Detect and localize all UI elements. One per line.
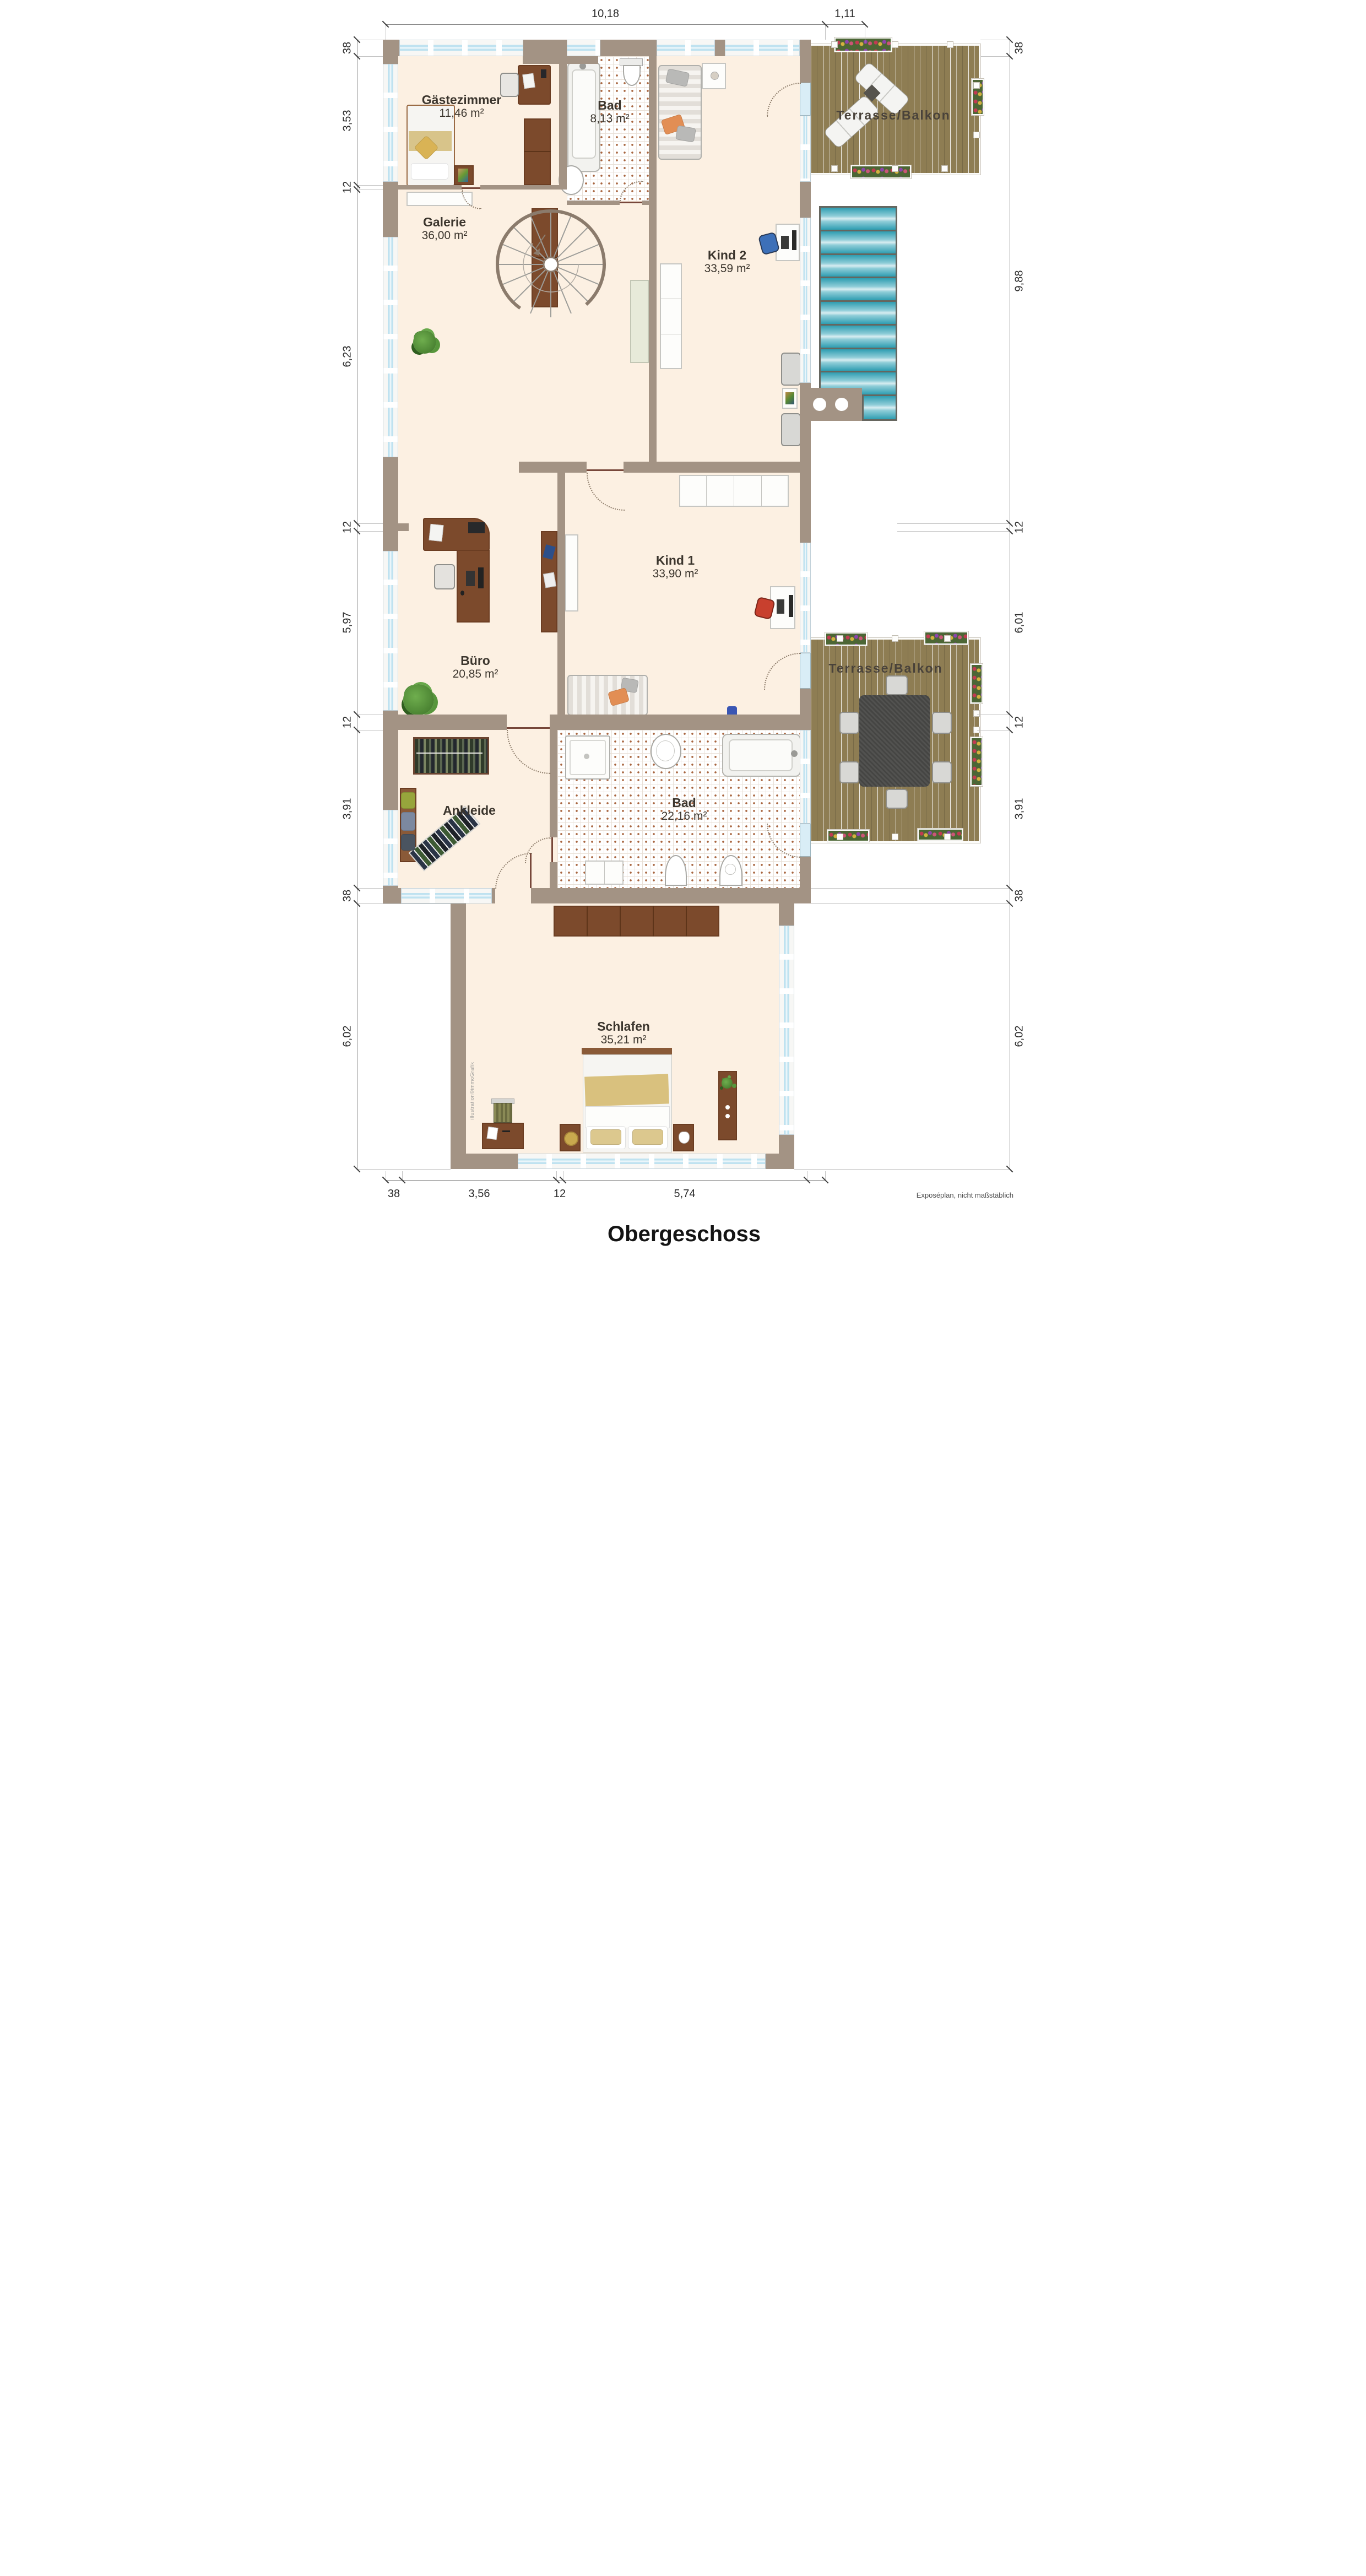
schlafen-jug (679, 1132, 690, 1144)
schlafen-wardrobe-door (686, 906, 687, 937)
schlafen-dresser-plant (722, 1078, 733, 1089)
wall-ankleide-bad-a (550, 730, 557, 837)
dim-ext (897, 523, 1010, 524)
dim-label-left: 12 (341, 181, 354, 193)
bidet-basin (725, 864, 736, 875)
terrace-post (974, 711, 979, 716)
dim-ext (402, 1171, 403, 1180)
wall-gaeste-galerie-b (480, 185, 567, 190)
dim-ext (357, 1169, 451, 1170)
dim-ext (357, 56, 383, 57)
guest-desk-papers (522, 73, 535, 89)
bathtub-ug-faucet (791, 750, 798, 757)
schlafen-wardrobe-row (554, 906, 719, 937)
dim-label-top: 1,11 (834, 8, 855, 20)
kind2-pillow-gray2 (675, 125, 696, 143)
room-label-kind2: Kind 2 (708, 248, 746, 263)
flower-box (825, 632, 867, 646)
bathtub-ug-inner (729, 739, 793, 771)
terrace-post (832, 166, 837, 171)
dim-ext (357, 190, 383, 190)
bad-ug-cabinet-line (604, 861, 605, 885)
dim-ext (556, 1171, 557, 1180)
dim-label-left: 3,53 (341, 110, 354, 132)
ankleide-pillow-blue (401, 812, 415, 831)
schlafen-chair-seat (494, 1103, 512, 1123)
dim-line-right (1010, 40, 1010, 1169)
dim-label-right: 6,02 (1013, 1026, 1025, 1047)
utility-circle (835, 398, 848, 411)
ankleide-wardrobe-rail (416, 753, 483, 754)
schlafen-wardrobe-door (587, 906, 588, 937)
window-left-gaeste (383, 64, 398, 182)
dim-label-left: 6,23 (341, 346, 354, 367)
guest-bed-pillow (411, 163, 448, 180)
buero-plant (403, 684, 434, 715)
skylight-panel (821, 255, 896, 277)
disclaimer: Exposéplan, nicht maßstäblich (917, 1191, 1013, 1199)
dim-ext (807, 1171, 807, 1180)
window-right-bad-ug (800, 730, 811, 824)
schlafen-pillow-tan (590, 1129, 621, 1145)
schlafen-desk-pen (502, 1130, 510, 1132)
dim-ext (825, 24, 826, 40)
dim-line-bottom (386, 1180, 825, 1181)
terrace-post (942, 166, 947, 171)
dim-label-right: 3,91 (1013, 798, 1025, 820)
dim-ext (980, 56, 1010, 57)
room-area-buero: 20,85 m² (453, 668, 498, 681)
flower-box (971, 664, 983, 703)
dim-ext (980, 40, 1010, 40)
wall-bad-og-bottom-a (567, 201, 620, 205)
skylight-panel (864, 396, 896, 419)
guest-desk-phone (541, 69, 546, 78)
flower-box (971, 737, 983, 786)
window-bottom-ankleide (401, 888, 492, 903)
dim-label-bottom: 3,56 (469, 1188, 490, 1200)
terrace-post (837, 834, 843, 840)
skylight-panel (821, 349, 896, 371)
dim-line-left (357, 40, 357, 1169)
window-left-ankleide (383, 810, 398, 886)
window-top-bad (567, 40, 600, 56)
flower-box (851, 165, 911, 178)
terrace-post (832, 42, 837, 47)
buero-chair (434, 564, 455, 589)
buero-mouse (460, 591, 464, 596)
buero-printer (468, 522, 485, 533)
buero-keyboard (466, 571, 475, 586)
kind2-monitor (792, 230, 796, 250)
wall-kind1-kind2-a (519, 462, 587, 473)
flower-box (827, 830, 869, 842)
room-label-bad-ug: Bad (672, 795, 696, 810)
dim-label-bottom: 38 (388, 1188, 400, 1200)
room-area-gaestezimmer: 11,46 m² (439, 107, 484, 120)
schlafen-bed-headboard (582, 1048, 672, 1054)
skylight-panel (821, 326, 896, 348)
page-title: Obergeschoss (608, 1222, 761, 1247)
terrace-post (892, 42, 898, 47)
skylight-panel (821, 302, 896, 324)
kind2-armchair (781, 413, 801, 446)
wall-ankleide-bad-b (550, 862, 557, 888)
dim-label-right: 12 (1013, 521, 1025, 533)
terrace-post (974, 132, 979, 138)
kind2-lamp (711, 72, 719, 80)
buero-desk-side (457, 550, 490, 623)
guest-magazine (458, 169, 468, 182)
dim-label-left: 12 (341, 716, 354, 728)
window-top-kind2-b (725, 40, 800, 56)
terrace-post (837, 636, 843, 641)
schlafen-pillow-tan (632, 1129, 663, 1145)
terrace-post (945, 636, 950, 641)
kind2-wardrobe-line (660, 334, 682, 334)
room-label-buero: Büro (460, 653, 490, 668)
sink-ug-inner (656, 740, 675, 761)
room-area-bad-og: 8,13 m² (590, 112, 629, 126)
wall-mid-a (383, 715, 507, 730)
door-threshold-kind1 (587, 469, 624, 471)
dim-ext (811, 888, 1010, 889)
window-top-kind2-a (657, 40, 715, 56)
dim-label-left: 6,02 (341, 1026, 354, 1047)
kind2-wardrobe-line (660, 299, 682, 299)
room-label-schlafen: Schlafen (597, 1019, 650, 1034)
dim-ext (357, 523, 383, 524)
spiral-staircase (495, 208, 607, 321)
dim-label-right: 12 (1013, 716, 1025, 728)
terrace-door-kind1 (800, 653, 811, 689)
ankleide-pillow-dark (401, 834, 415, 851)
window-left-buero (383, 551, 398, 711)
dim-label-right: 38 (1013, 42, 1025, 54)
schlafen-bed-fold (585, 1106, 670, 1128)
dim-label-left: 38 (341, 890, 354, 902)
dim-ext (977, 730, 1010, 730)
room-area-schlafen: 35,21 m² (601, 1033, 647, 1047)
dim-ext (865, 24, 865, 43)
wall-kind1-kind2-b (624, 462, 800, 473)
dim-ext (357, 531, 383, 532)
window-right-kind2-b (800, 218, 811, 383)
terrace-chair (886, 675, 908, 695)
wall-galerie-kind2 (649, 56, 657, 473)
room-label-terrasse-oben: Terrasse/Balkon (836, 108, 950, 123)
dim-label-right: 6,01 (1013, 612, 1025, 634)
terrace-post (892, 166, 898, 171)
terrace-post (974, 83, 979, 88)
window-right-kind2-a (800, 116, 811, 182)
room-label-terrasse-unten: Terrasse/Balkon (828, 661, 942, 676)
dim-ext (897, 531, 1010, 532)
kind1-cupboard-line (706, 475, 707, 507)
dim-ext (386, 1171, 386, 1180)
floorplan-page: 10,18 1,11 38 3,53 12 6,23 12 5,97 12 3,… (341, 0, 1024, 1288)
room-area-kind2: 33,59 m² (704, 262, 750, 275)
kind1-keyboard (777, 599, 784, 614)
buero-papers (429, 524, 443, 542)
dim-label-left: 38 (341, 42, 354, 54)
skylight-strip (819, 206, 897, 396)
terrace-post (945, 834, 950, 840)
kind2-magazine (785, 392, 794, 404)
dim-ext (357, 715, 383, 715)
ankleide-pillow-green (401, 792, 415, 809)
schlafen-bed-blanket (584, 1074, 669, 1106)
skylight-panel (821, 208, 896, 230)
dim-ext (357, 40, 383, 40)
kind1-monitor (789, 595, 793, 617)
kind2-wardrobe (660, 263, 682, 369)
guest-desk-chair (500, 73, 519, 97)
galerie-cabinet-green (630, 280, 649, 363)
dim-ext (386, 24, 386, 40)
room-label-galerie: Galerie (423, 215, 466, 230)
dim-label-right: 38 (1013, 890, 1025, 902)
dim-label-left: 12 (341, 521, 354, 533)
kind1-cabinet (565, 534, 578, 611)
dim-ext (794, 1169, 1010, 1170)
room-label-kind1: Kind 1 (656, 553, 695, 568)
terrace-post (892, 636, 898, 641)
dim-ext (825, 1171, 826, 1180)
dim-label-left: 5,97 (341, 612, 354, 634)
wall-gaeste-galerie-a (398, 185, 462, 190)
schlafen-wardrobe-door (620, 906, 621, 937)
schlafen-knob (725, 1114, 730, 1118)
schlafen-desk-paper (487, 1127, 498, 1140)
kind1-cupboard-line (734, 475, 734, 507)
terrace-post (947, 42, 953, 47)
wall-buero-kind1 (557, 473, 565, 715)
buero-book (543, 572, 556, 588)
skylight-panel (821, 278, 896, 300)
dim-ext (811, 903, 1010, 904)
shower-drain (584, 754, 589, 759)
galerie-plant (413, 331, 436, 354)
kind2-armchair (781, 353, 801, 386)
door-threshold-bad-ug-door (551, 837, 553, 862)
schlafen-knob (725, 1105, 730, 1110)
dim-label-bottom: 12 (554, 1188, 566, 1200)
dim-ext (357, 903, 451, 904)
terrace-chair (932, 712, 952, 734)
window-annex-bottom (518, 1154, 766, 1169)
room-area-bad-ug: 22,16 m² (662, 810, 707, 823)
terrace-chair (932, 761, 952, 783)
dining-table (859, 695, 930, 787)
door-gap-schlafen (495, 888, 531, 903)
buero-monitor (478, 567, 484, 588)
dim-label-bottom: 5,74 (674, 1188, 696, 1200)
skylight-panel (821, 231, 896, 253)
dim-ext (357, 730, 383, 730)
room-area-kind1: 33,90 m² (653, 567, 698, 581)
door-threshold-gaeste (462, 187, 480, 189)
watermark: illustration©immoGrafik (469, 1062, 475, 1120)
dim-ext (977, 715, 1010, 715)
room-label-ankleide: Ankleide (443, 803, 496, 818)
window-right-kind1 (800, 543, 811, 653)
dim-ext (357, 185, 383, 186)
dim-label-top: 10,18 (592, 8, 619, 20)
skylight-panel-offset (862, 394, 897, 421)
wall-annex-left (451, 903, 466, 1169)
flower-box (834, 37, 892, 52)
dim-line-top (386, 24, 865, 25)
room-label-bad-og: Bad (598, 98, 621, 113)
kind1-cupboard-line (761, 475, 762, 507)
schlafen-wardrobe-door (653, 906, 654, 937)
door-threshold-bad-og (620, 202, 642, 203)
flower-box (918, 829, 963, 841)
kind2-keyboard (781, 236, 789, 249)
terrace-door-bad-ug (800, 824, 811, 857)
dim-ext (357, 888, 383, 889)
terrace-chair (886, 789, 908, 809)
terrace-post (892, 834, 898, 840)
schlafen-gold-disc (564, 1132, 578, 1146)
guest-wardrobe-line (524, 151, 551, 152)
window-left-galerie (383, 237, 398, 457)
wall-stub-left (383, 523, 409, 531)
terrace-chair (839, 761, 859, 783)
ankleide-wardrobe (413, 737, 489, 775)
wall-mid-b (550, 715, 811, 730)
window-annex-right (779, 926, 794, 1135)
window-top-gaeste (399, 40, 523, 56)
dim-ext (563, 1171, 563, 1180)
room-area-galerie: 36,00 m² (422, 229, 468, 242)
dim-label-right: 9,88 (1013, 270, 1025, 292)
terrace-chair (839, 712, 859, 734)
door-threshold-ankleide (507, 727, 550, 729)
room-label-gaestezimmer: Gästezimmer (422, 93, 501, 107)
terrace-door-kind2 (800, 83, 811, 116)
wall-gaeste-bad (559, 56, 567, 185)
utility-circle (813, 398, 826, 411)
dim-label-left: 3,91 (341, 798, 354, 820)
